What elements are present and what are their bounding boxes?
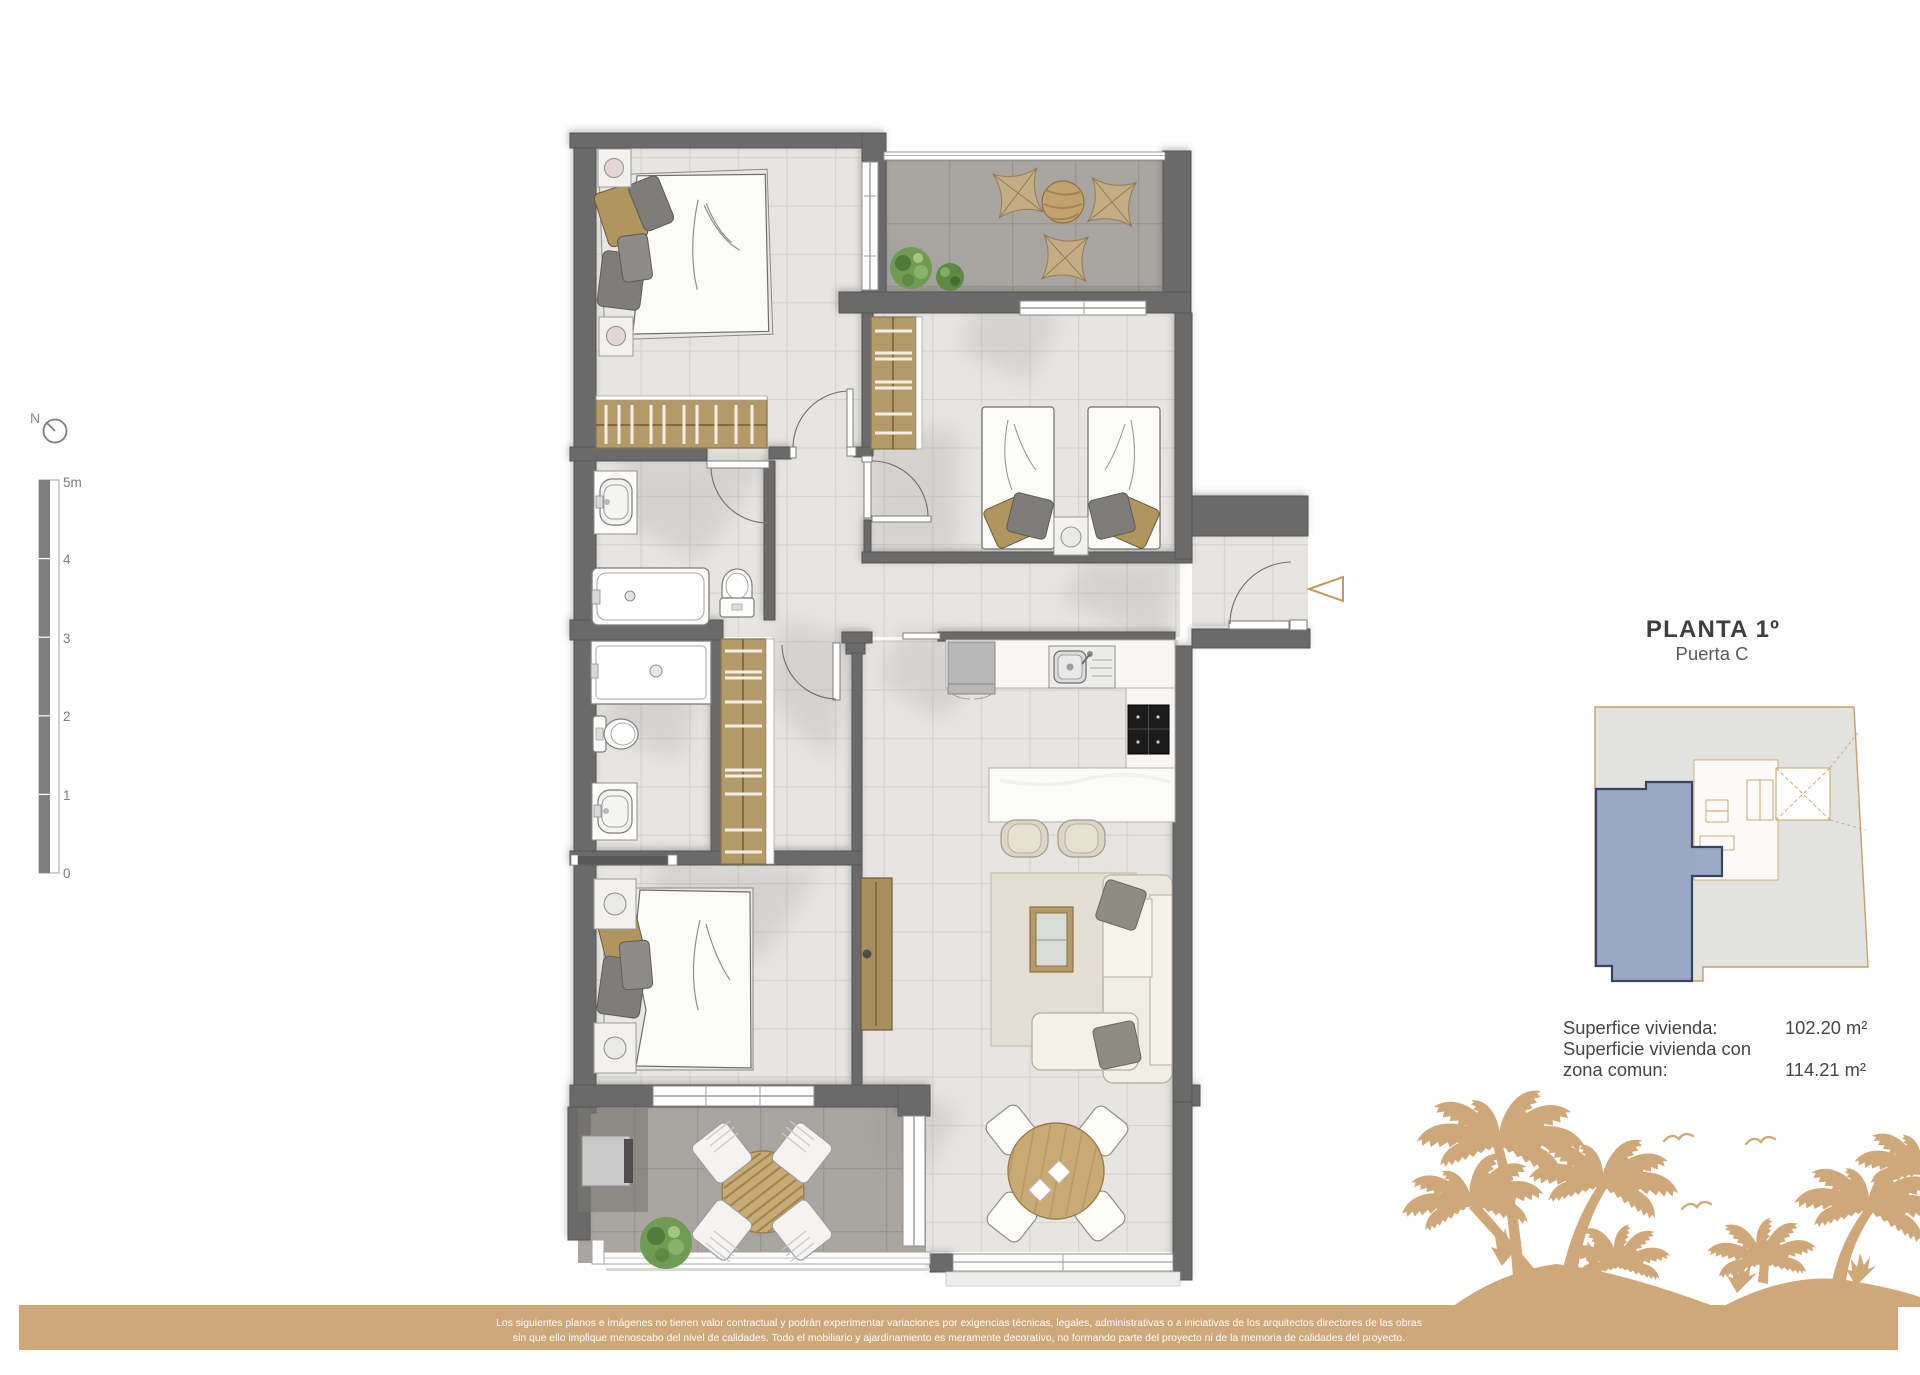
svg-text:Superfice vivienda:: Superfice vivienda: xyxy=(1563,1017,1717,1038)
svg-text:zona comun:: zona comun: xyxy=(1563,1059,1668,1080)
svg-text:Superficie vivienda con: Superficie vivienda con xyxy=(1563,1038,1751,1059)
svg-text:N: N xyxy=(30,410,40,426)
svg-text:Puerta C: Puerta C xyxy=(1675,643,1748,664)
svg-text:5m: 5m xyxy=(63,475,82,490)
svg-text:PLANTA 1º: PLANTA 1º xyxy=(1646,616,1780,643)
svg-text:4: 4 xyxy=(63,552,71,567)
svg-text:1: 1 xyxy=(63,788,71,803)
svg-text:Los siguientes planos e imágen: Los siguientes planos e imágenes no tien… xyxy=(496,1318,1422,1329)
svg-text:2: 2 xyxy=(63,709,71,724)
svg-text:3: 3 xyxy=(63,631,71,646)
svg-text:102.20 m²: 102.20 m² xyxy=(1785,1017,1867,1038)
svg-text:sin que ello implique menoscab: sin que ello implique menoscabo del nive… xyxy=(513,1333,1405,1344)
svg-text:0: 0 xyxy=(63,866,71,881)
svg-text:114.21 m²: 114.21 m² xyxy=(1785,1059,1866,1080)
